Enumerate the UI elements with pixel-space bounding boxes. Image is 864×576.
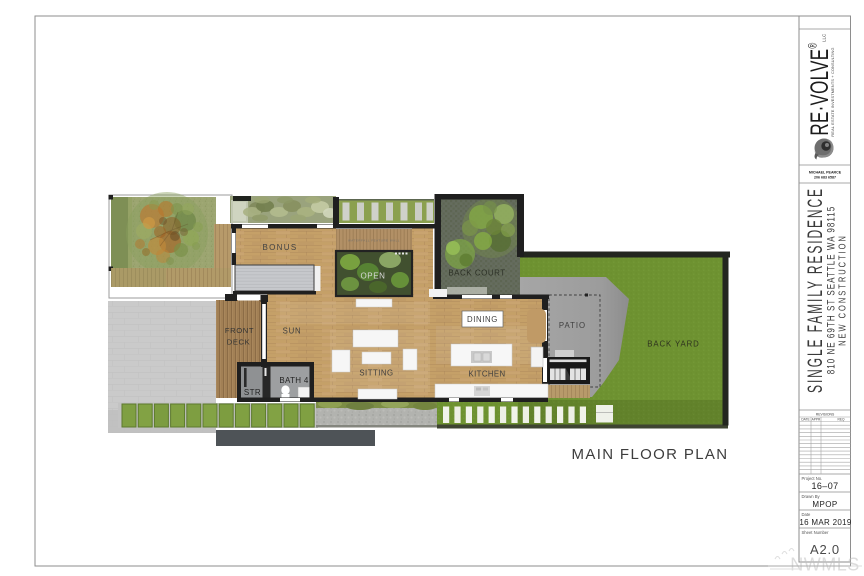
svg-text:DECK: DECK (227, 338, 251, 347)
svg-text:MAIN FLOOR PLAN: MAIN FLOOR PLAN (572, 446, 729, 463)
svg-text:DATE: DATE (801, 418, 809, 422)
svg-text:REVISIONS: REVISIONS (816, 413, 835, 417)
svg-text:REQ: REQ (838, 418, 845, 422)
svg-text:PATIO: PATIO (559, 321, 586, 330)
svg-text:16 MAR 2019: 16 MAR 2019 (799, 518, 851, 527)
svg-text:RE·VOLVE®: RE·VOLVE® (807, 42, 834, 135)
svg-text:SUN: SUN (283, 327, 302, 336)
svg-text:STR: STR (244, 388, 261, 397)
svg-text:SINGLE FAMILY RESIDENCE: SINGLE FAMILY RESIDENCE (804, 187, 827, 393)
svg-text:FRONT: FRONT (225, 326, 254, 335)
svg-text:BONUS: BONUS (263, 243, 298, 252)
svg-text:Sheet Number: Sheet Number (802, 530, 830, 535)
svg-text:BATH 4: BATH 4 (279, 376, 308, 385)
svg-text:Date: Date (802, 512, 812, 517)
svg-text:APPR: APPR (812, 418, 821, 422)
svg-text:Drawn By: Drawn By (802, 494, 821, 499)
svg-text:MICHAEL PEARCE: MICHAEL PEARCE (809, 171, 842, 175)
svg-text:SITTING: SITTING (359, 369, 393, 378)
svg-text:206 683 6587: 206 683 6587 (814, 176, 836, 180)
svg-text:REAL ESTATE INVESTMENTS + CONS: REAL ESTATE INVESTMENTS + CONSULTING (831, 47, 835, 136)
svg-text:KITCHEN: KITCHEN (468, 370, 505, 379)
svg-text:DINING: DINING (467, 315, 498, 324)
svg-text:LLC: LLC (822, 33, 827, 42)
svg-text:MPOP: MPOP (812, 500, 837, 509)
svg-text:BACK COURT: BACK COURT (448, 269, 505, 278)
svg-text:16–07: 16–07 (811, 481, 838, 491)
svg-text:OPEN: OPEN (360, 272, 385, 281)
svg-text:WATERFALL FEATURE WALL: WATERFALL FEATURE WALL (348, 239, 400, 243)
svg-text:NWMLS: NWMLS (790, 555, 860, 575)
svg-text:NEW CONSTRUCTION: NEW CONSTRUCTION (836, 234, 847, 346)
svg-text:BACK YARD: BACK YARD (647, 340, 699, 349)
